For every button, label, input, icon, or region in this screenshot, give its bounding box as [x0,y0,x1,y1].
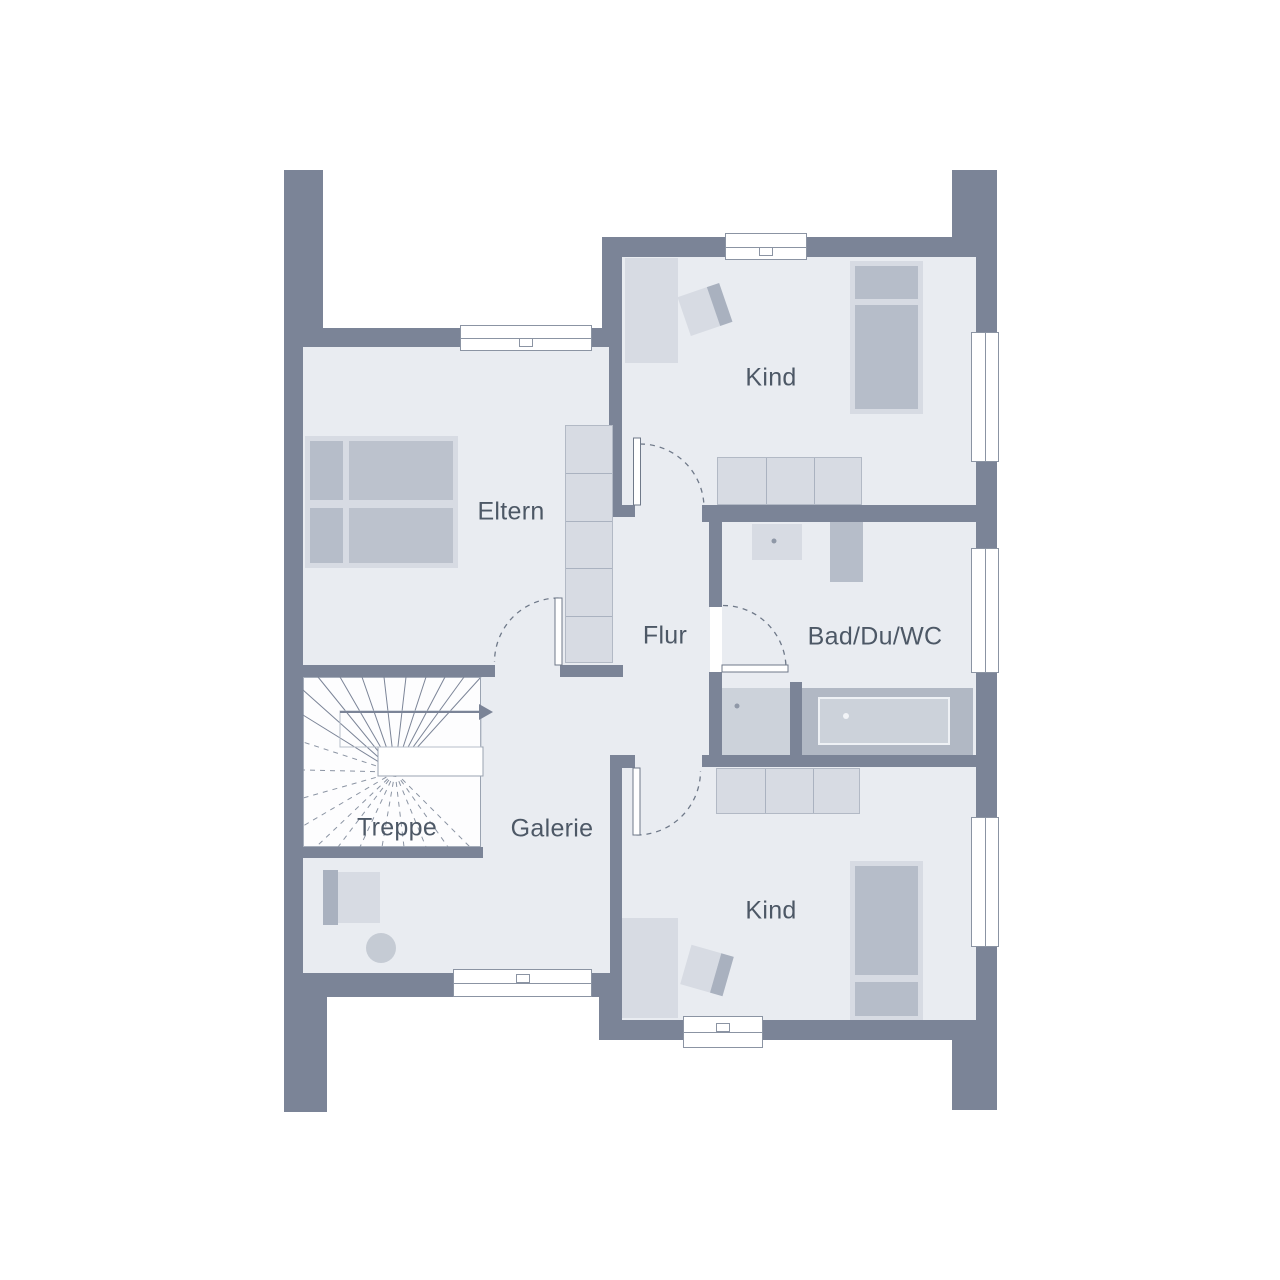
bathtub-drain-dot [843,713,849,719]
door-arc-bad [723,606,786,669]
door-leaf-kind-bottom [633,768,640,835]
door-leaf-eltern [555,598,562,665]
room-label-flur: Flur [643,622,687,651]
stair-landing [378,747,483,776]
door-arc-eltern [495,598,559,662]
room-label-galerie: Galerie [511,815,594,844]
door-leaf-bad [722,665,788,672]
room-label-bad: Bad/Du/WC [808,623,943,652]
door-leaf-kind-top [634,438,641,505]
shower-drain-dot [735,704,740,709]
floor-plan: Eltern Kind Flur Bad/Du/WC Treppe Galeri… [0,0,1280,1280]
sink-drain-dot [772,539,777,544]
door-arc-kind-bottom [637,771,701,835]
room-label-kind-bottom: Kind [745,897,796,926]
room-label-eltern: Eltern [477,498,544,527]
stair-arrow-icon [479,704,493,720]
room-label-kind-top: Kind [745,364,796,393]
door-arc-kind-top [640,444,704,508]
room-label-treppe: Treppe [357,814,437,843]
plan-linework [0,0,1280,1280]
